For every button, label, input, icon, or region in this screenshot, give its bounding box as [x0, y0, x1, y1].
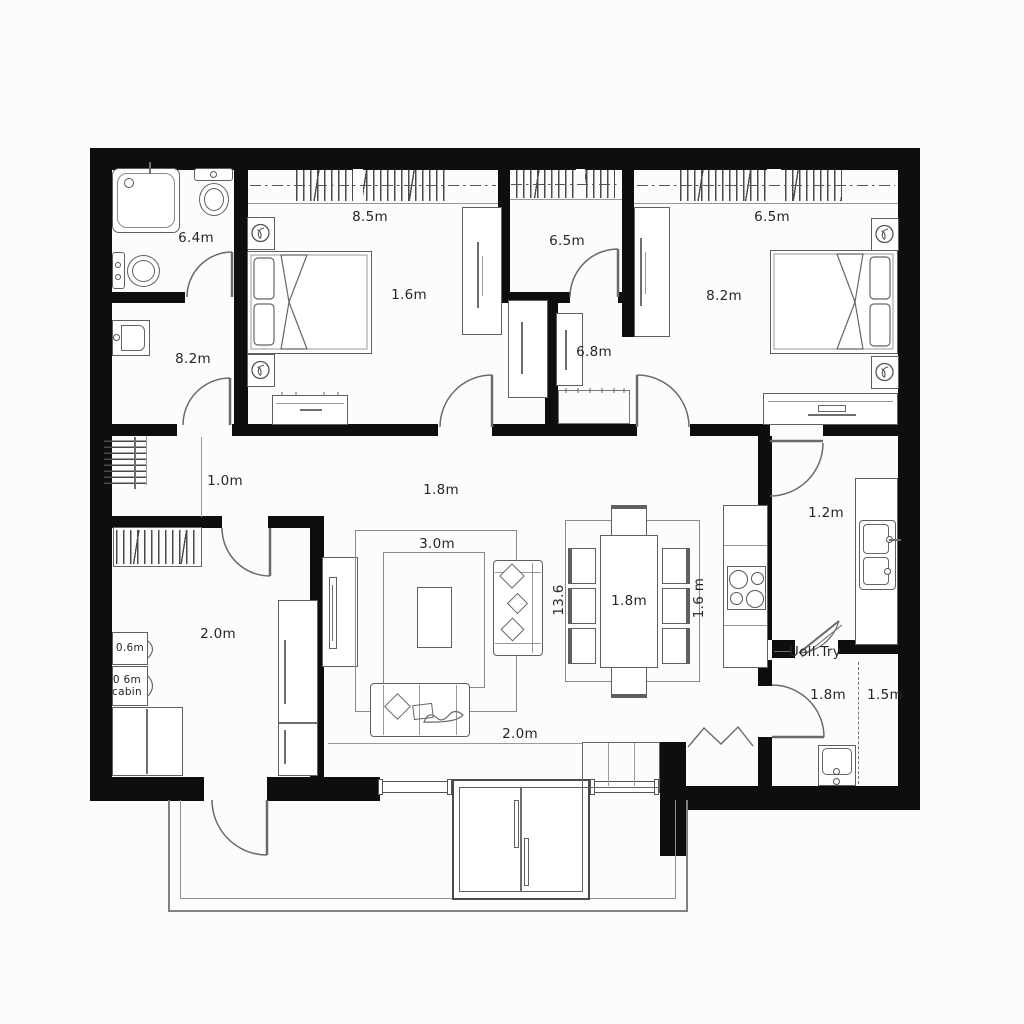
window-handle	[524, 838, 529, 886]
label-dining-right: 1.6 m	[691, 578, 707, 618]
counter-divider	[724, 625, 767, 626]
floor-plan: 6.4m 8.2m 8.5m 1.6m 6.5m 6.8m 6.5m 8.2m …	[0, 0, 1024, 1024]
dressing-wardrobe-hatch	[116, 530, 199, 564]
bed	[247, 251, 372, 354]
label-utility-note: Uoll.Try	[789, 644, 841, 660]
wall-right	[898, 148, 920, 810]
sofa-armrest	[456, 685, 457, 735]
washer-knob	[833, 768, 840, 775]
label-cabinet-b-line2: cabin	[112, 686, 142, 698]
cabinet-handle	[521, 322, 523, 374]
dining-chair	[611, 505, 647, 537]
bedroom2-shelf-line	[634, 203, 898, 204]
dresser-handle	[808, 414, 856, 416]
nightstand	[247, 217, 275, 250]
wall-bottom-left	[90, 777, 204, 801]
nightstand	[871, 218, 899, 251]
label-utility-a: 1.8m	[810, 687, 846, 703]
utility-divider	[858, 662, 859, 784]
toilet-button	[210, 171, 217, 178]
wall-hall-north-c	[492, 424, 637, 436]
hall-closet-line	[201, 437, 202, 517]
label-bathroom-area: 6.4m	[178, 230, 214, 246]
wall-bedroom2-left	[622, 166, 634, 337]
counter-divider	[724, 545, 767, 546]
cabinet-handle	[477, 242, 479, 308]
bed-details	[771, 251, 896, 352]
tv-unit	[322, 557, 358, 667]
toilet2-bowl-inner	[132, 260, 155, 282]
bedroom1-closet-rail	[250, 185, 496, 186]
wall-hall-north-b	[232, 424, 438, 436]
washer-knob	[833, 778, 840, 785]
label-storage-area: 6.8m	[576, 344, 612, 360]
nightstand	[871, 356, 899, 389]
wardrobe-divider	[279, 722, 317, 724]
wall-bottom-mid	[267, 777, 380, 801]
label-dining-table: 1.8m	[611, 593, 647, 609]
bedroom2-closet-rail	[637, 185, 895, 186]
label-bedroom1-dim: 1.6m	[391, 287, 427, 303]
burner	[751, 572, 764, 585]
lamp-icon	[248, 218, 273, 248]
wall-bath-divider	[108, 292, 185, 303]
dresser-line	[276, 403, 344, 404]
dining-chair	[568, 588, 596, 624]
label-dining-left: 13.6	[551, 584, 567, 615]
cabinet-handle	[482, 256, 483, 296]
living-dim-line	[328, 743, 582, 744]
toilet2-tank	[112, 252, 125, 289]
bed-details	[248, 252, 370, 352]
label-cabinet-b-line1: 0 6m	[113, 674, 141, 686]
dining-chair	[662, 628, 690, 664]
window-sill	[378, 781, 452, 793]
sofa-back-line	[532, 563, 533, 653]
lamp-icon	[872, 219, 897, 249]
sink-faucet	[884, 568, 891, 575]
tv-screen-line	[332, 585, 333, 641]
window-divider	[520, 787, 522, 892]
label-bedroom2-width: 6.5m	[754, 209, 790, 225]
lamp-icon	[872, 357, 897, 387]
sofa-armrest	[383, 685, 384, 735]
coat-rack-edge	[146, 436, 147, 485]
label-closet-area: 6.5m	[549, 233, 585, 249]
dresser-handle-tray	[818, 405, 846, 412]
bench-divider	[634, 743, 635, 786]
dining-chair	[611, 666, 647, 698]
wall-bedroom1-left	[234, 166, 248, 436]
sink-faucet-arm	[889, 539, 901, 541]
cabinet-handle	[284, 640, 286, 704]
label-kitchen-dim: 1.2m	[808, 505, 844, 521]
wc-sink-basin	[121, 325, 145, 351]
coffee-table	[417, 587, 452, 648]
label-bedroom1-width: 8.5m	[352, 209, 388, 225]
dining-chair	[568, 628, 596, 664]
dresser-handle	[300, 409, 322, 411]
label-cabinet-a: 0.6m	[116, 642, 144, 654]
balcony-bench	[582, 742, 660, 788]
bed	[770, 250, 898, 354]
label-rug: 3.0m	[419, 536, 455, 552]
closet-rail	[511, 184, 621, 185]
sofa-pillow-small	[412, 703, 434, 720]
wall-bottom-right	[686, 786, 920, 810]
storage-shelf	[558, 390, 630, 424]
toilet2-button	[115, 262, 121, 268]
nightstand	[247, 354, 275, 387]
wardrobe-cabinet	[508, 300, 548, 398]
label-utility-b: 1.5m	[867, 687, 903, 703]
label-wc-area: 8.2m	[175, 351, 211, 367]
cabinet-divider	[146, 709, 148, 774]
label-cabinet-b: 0 6m cabin	[112, 674, 142, 698]
closet-shelf-line	[510, 199, 622, 200]
burner	[729, 570, 748, 589]
label-living-bottom: 2.0m	[502, 726, 538, 742]
label-bedroom2-area: 8.2m	[706, 288, 742, 304]
balcony-railing-inner	[180, 800, 676, 899]
shower-drain	[124, 178, 134, 188]
cabinet-handle	[284, 730, 286, 764]
burner	[730, 592, 743, 605]
burner	[746, 590, 764, 608]
wall-kitchen-west-c	[758, 737, 772, 786]
lamp-icon	[248, 355, 273, 385]
cabinet-handle	[640, 238, 642, 306]
dressing-cabinet-c	[112, 707, 183, 776]
toilet2-button	[115, 274, 121, 280]
shower-handle	[149, 162, 151, 174]
label-hallway-a: 1.0m	[207, 473, 243, 489]
dining-chair	[662, 588, 690, 624]
dresser-line	[768, 401, 893, 402]
wall-hall-north-d	[690, 424, 770, 436]
dining-chair	[662, 548, 690, 584]
window-handle	[514, 800, 519, 848]
dining-chair	[568, 548, 596, 584]
wall-hall-north-e	[823, 424, 898, 436]
label-dressing-area: 2.0m	[200, 626, 236, 642]
coat-rack-spine	[134, 437, 136, 489]
wall-hall-north-a	[110, 424, 177, 436]
sofa-armrest	[495, 643, 541, 644]
sill-end-cap	[378, 779, 383, 795]
wc-sink-faucet	[113, 334, 120, 341]
coat-rack-hatch	[104, 437, 146, 484]
toilet-bowl-inner	[204, 188, 224, 211]
cabinet-handle	[645, 252, 646, 294]
cabinet-handle	[565, 330, 567, 370]
label-hallway-b: 1.8m	[423, 482, 459, 498]
bench-divider	[608, 743, 609, 786]
bedroom1-shelf-line	[248, 203, 498, 204]
